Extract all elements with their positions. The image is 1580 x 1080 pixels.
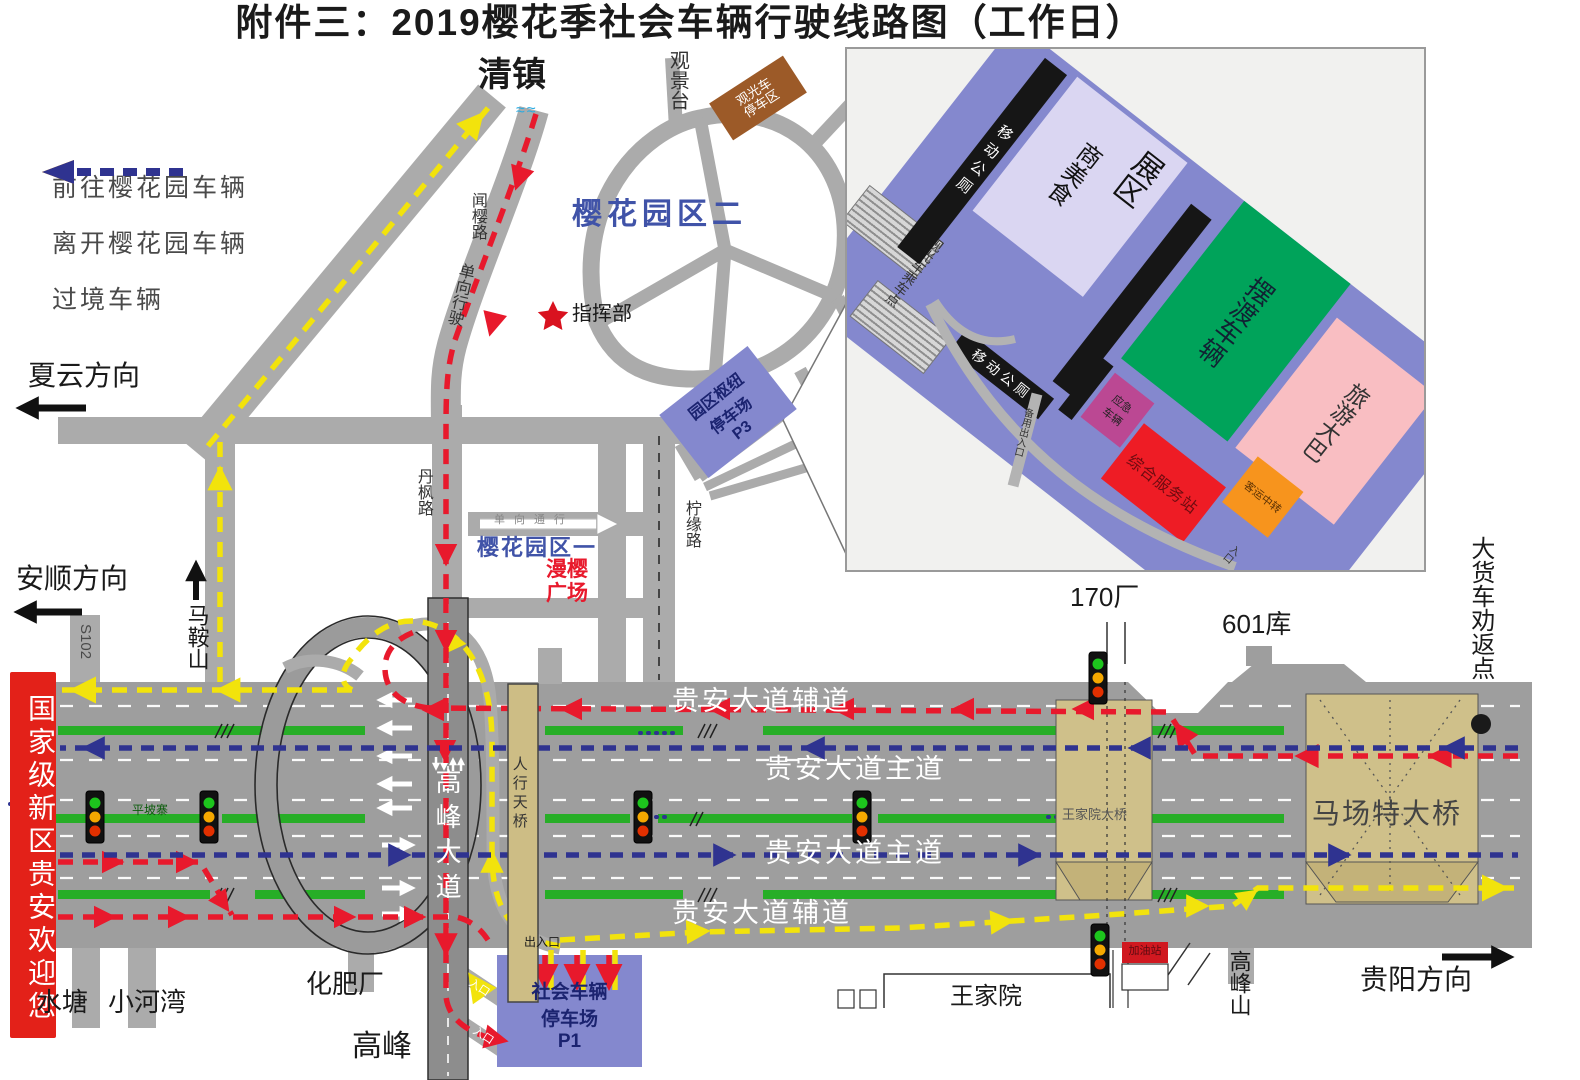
pedestrian-bridge-label: 人行天桥 — [510, 756, 527, 832]
traffic-light-icon — [1089, 652, 1107, 704]
p1-code: P1 — [558, 1031, 581, 1053]
traffic-light-icon — [86, 791, 104, 843]
traffic-light-icon — [1091, 924, 1109, 976]
park-zone1-label: 樱花园区一 — [477, 536, 597, 561]
machang-bridge-label: 马场特大桥 — [1312, 798, 1462, 829]
route-map-page: { "title": "附件三：2019樱花季社会车辆行驶线路图（工作日）", … — [0, 0, 1580, 1080]
hub-parking-inset: 观光车乘车点 移动公厕 展区 商美食 摆渡车辆 旅游大巴 应急车辆 移动公厕 综… — [845, 47, 1426, 572]
park-zone2-label: 樱花园区二 — [572, 198, 747, 232]
legend-label: 离开樱花园车辆 — [52, 224, 248, 260]
xiaohewan-label: 小河湾 — [108, 988, 186, 1017]
p1-gate-inout-label: 出入口 — [524, 936, 560, 949]
pedestrian-bridge-deck — [508, 684, 538, 1002]
depot-601-label: 601库 — [1222, 610, 1291, 639]
s102-label: S102 — [76, 624, 93, 659]
wenying-road-label: 闻樱路 — [468, 192, 486, 240]
main-road-bottom-label: 贵安大道主道 — [765, 838, 945, 868]
pingpozhai-label: 平坡寨 — [132, 804, 168, 817]
fertilizer-plant-label: 化肥厂 — [306, 970, 384, 999]
welcome-banner: 国家级新区贵安欢迎您 — [10, 672, 56, 1038]
legend-label: 过境车辆 — [52, 280, 164, 316]
gaofengshan-label: 高峰山 — [1226, 950, 1251, 1016]
p1-name-line1: 社会车辆 — [531, 977, 607, 1004]
manying-square-label: 漫樱广场 — [543, 558, 591, 605]
auxiliary-road-top-label: 贵安大道辅道 — [672, 686, 852, 716]
shuitang-label: 水塘 — [36, 988, 88, 1017]
danfeng-road-label: 丹枫路 — [414, 468, 432, 516]
direction-guiyang: 贵阳方向 — [1360, 964, 1472, 995]
p1-parking-label-group: 社会车辆 停车场 P1 — [497, 975, 642, 1055]
gaofeng-avenue-label: 高峰大道 — [432, 768, 461, 908]
legend-item-leave-park: 离开樱花园车辆 — [38, 214, 248, 270]
ningyuan-road-label: 柠缘路 — [682, 500, 700, 548]
legend: 前往樱花园车辆 离开樱花园车辆 过境车辆 — [38, 158, 248, 326]
truck-return-dot-icon — [1471, 714, 1491, 734]
command-post-star-icon — [538, 301, 568, 330]
traffic-light-icon — [200, 791, 218, 843]
auxiliary-road-bottom-label: 贵安大道辅道 — [672, 898, 852, 928]
truck-return-label: 大货车劝返点 — [1466, 536, 1493, 680]
maanshan-label: 马鞍山 — [184, 604, 209, 670]
oneway-pass-label: 单向通行 — [494, 514, 574, 526]
viewing-platform-label: 观景台 — [666, 50, 688, 110]
legend-item-transit: 过境车辆 — [38, 270, 248, 326]
direction-xiayun: 夏云方向 — [28, 360, 140, 391]
wangjiayuan-bridge-label: 王家院大桥 — [1062, 808, 1127, 823]
command-post-label: 指挥部 — [572, 303, 632, 325]
traffic-light-icon — [634, 791, 652, 843]
p1-name-line2: 停车场 — [541, 1004, 598, 1031]
water-waves-icon: ≈≈ — [516, 102, 538, 120]
blue-dashed-arrow-icon — [38, 158, 193, 186]
page-title: 附件三：2019樱花季社会车辆行驶线路图（工作日） — [60, 2, 1320, 43]
traffic-light-icon — [853, 791, 871, 843]
main-road-top-label: 贵安大道主道 — [765, 754, 945, 784]
factory-170-label: 170厂 — [1070, 583, 1139, 612]
gas-station-label: 加油站 — [1122, 945, 1168, 957]
direction-anshun: 安顺方向 — [16, 563, 128, 594]
place-qingzhen: 清镇 — [478, 56, 546, 94]
inset-roads — [847, 49, 1424, 570]
wangjiayuan-label: 王家院 — [950, 984, 1022, 1011]
gaofeng-label: 高峰 — [352, 1030, 412, 1064]
